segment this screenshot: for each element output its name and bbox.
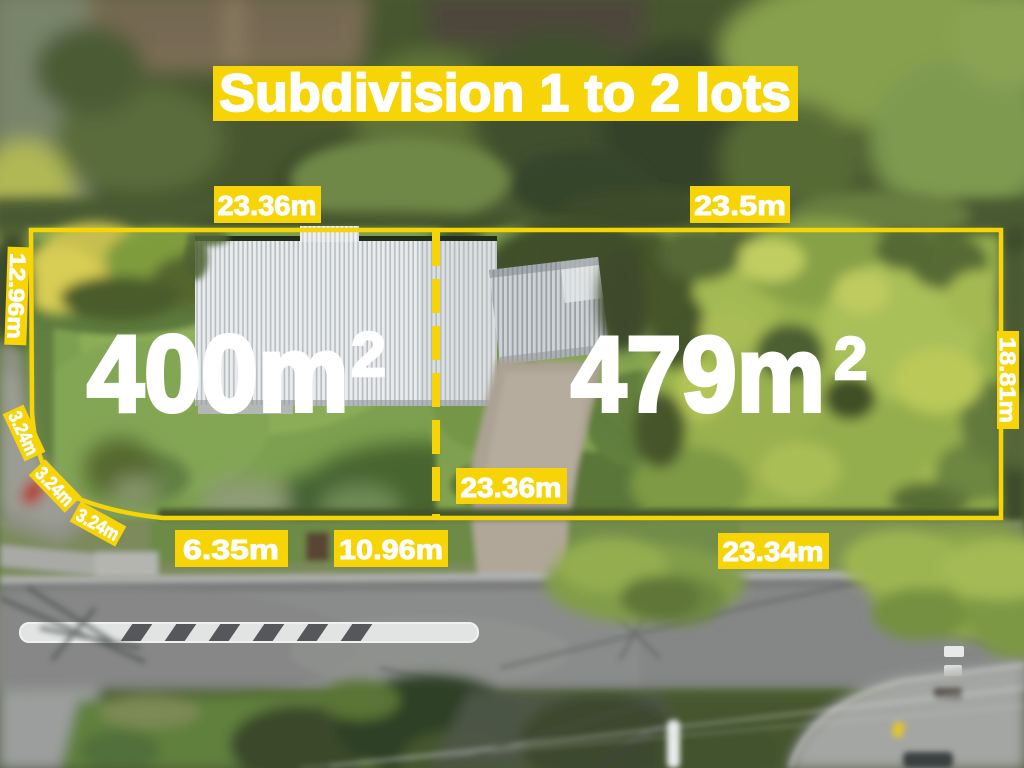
svg-text:400m: 400m — [87, 313, 349, 435]
svg-text:23.36m: 23.36m — [461, 472, 562, 503]
svg-text:Subdivision 1 to 2 lots: Subdivision 1 to 2 lots — [219, 64, 791, 123]
svg-text:23.36m: 23.36m — [218, 190, 317, 221]
svg-text:479m: 479m — [571, 314, 825, 434]
svg-text:6.35m: 6.35m — [183, 534, 279, 565]
svg-text:2: 2 — [834, 325, 867, 392]
svg-text:23.5m: 23.5m — [694, 190, 786, 221]
svg-text:12.96m: 12.96m — [3, 253, 31, 340]
svg-text:18.81m: 18.81m — [995, 337, 1020, 423]
svg-text:23.34m: 23.34m — [723, 536, 824, 567]
svg-text:10.96m: 10.96m — [339, 534, 443, 565]
svg-text:2: 2 — [351, 320, 386, 390]
